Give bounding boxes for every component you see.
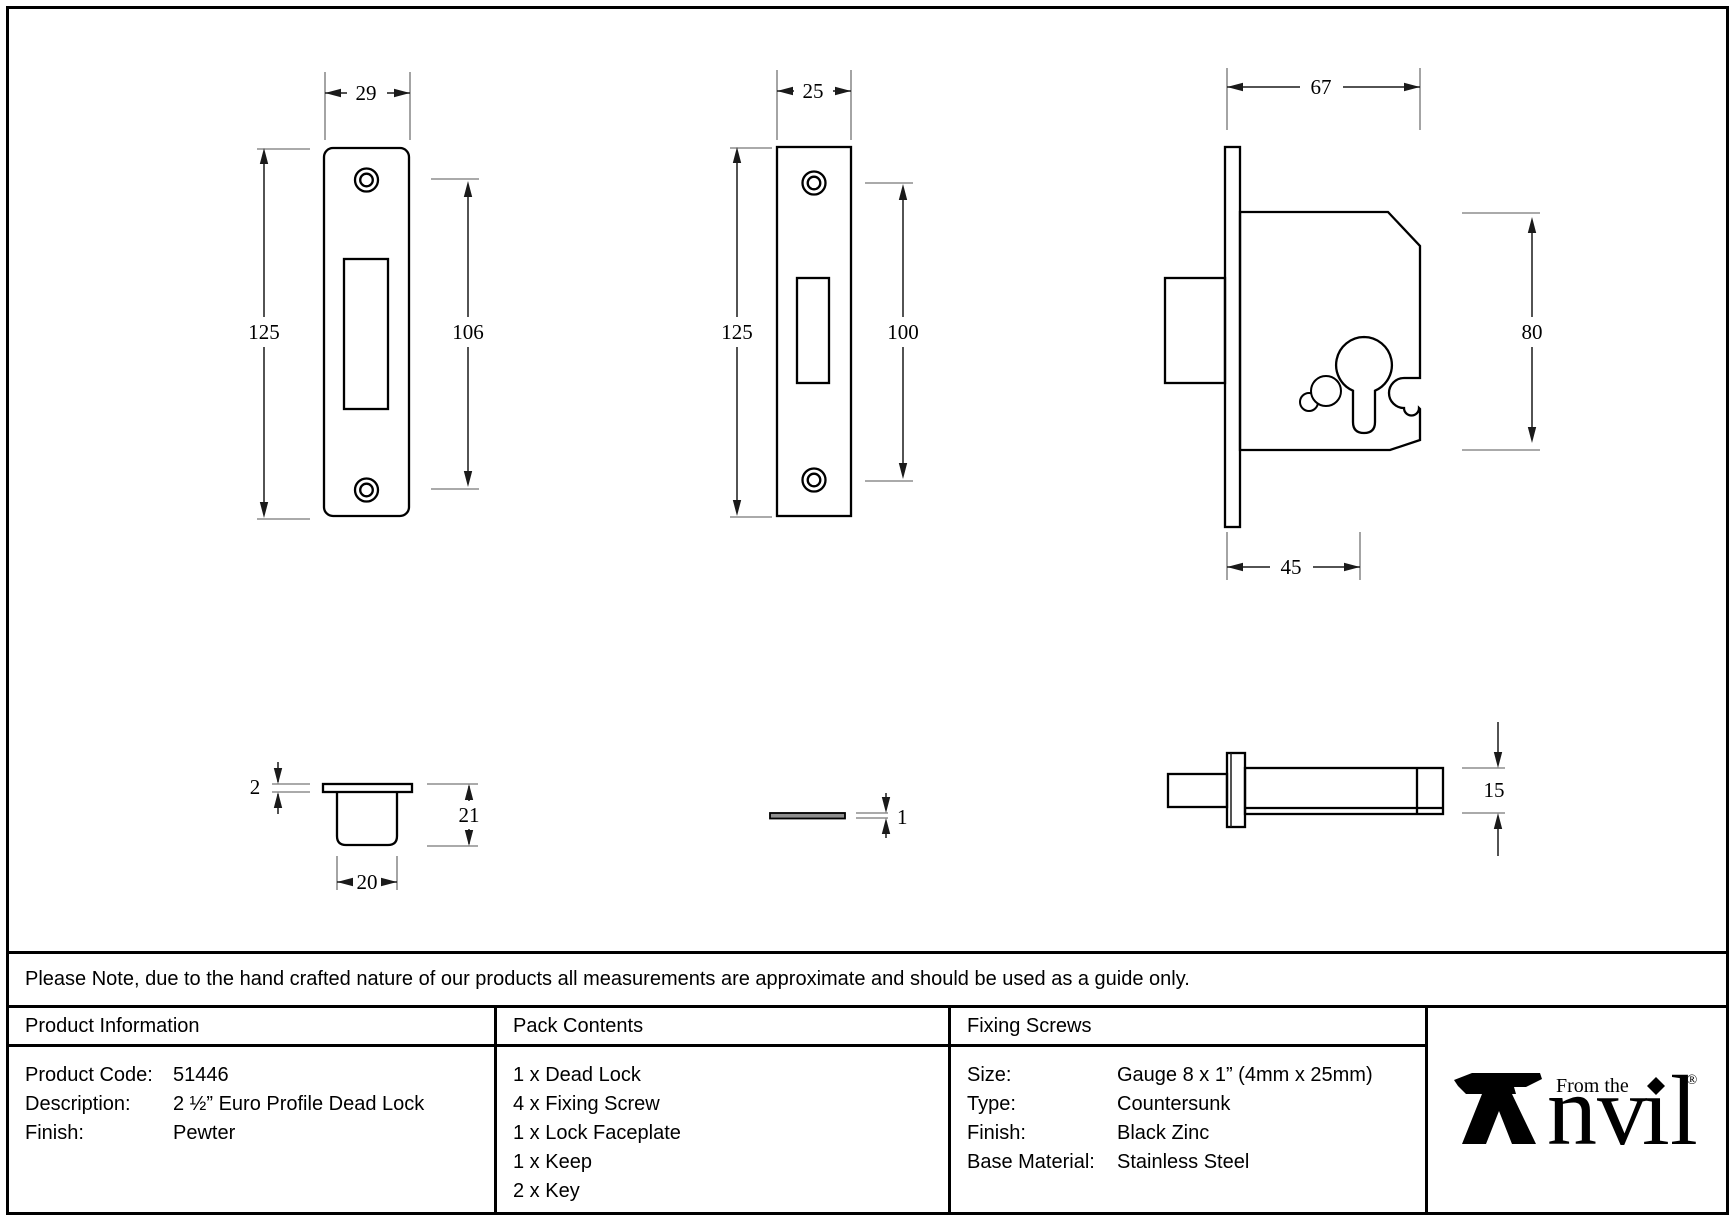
table-row: Type: Countersunk — [967, 1090, 1421, 1119]
lock-body-drawing: 67 80 45 — [1165, 68, 1543, 580]
dim-label: 67 — [1311, 75, 1332, 99]
table-row: Finish: Pewter — [25, 1119, 490, 1148]
pack-contents-column: Pack Contents 1 x Dead Lock 4 x Fixing S… — [494, 1008, 948, 1212]
keep-side-drawing: 2 21 20 — [250, 762, 480, 894]
row-label: Product Code: — [25, 1061, 173, 1090]
screw-hole-icon — [355, 169, 378, 192]
dim-label: 100 — [887, 320, 919, 344]
row-value: 2 ½” Euro Profile Dead Lock — [173, 1090, 424, 1119]
product-information-column: Product Information Product Code: 51446 … — [9, 1008, 494, 1212]
bolt-cutout — [344, 259, 388, 409]
keep-plate-outline — [324, 148, 409, 516]
list-item: 1 x Lock Faceplate — [513, 1119, 944, 1148]
screw-hole-icon — [360, 484, 373, 497]
row-label: Finish: — [967, 1119, 1117, 1148]
row-value: Black Zinc — [1117, 1119, 1209, 1148]
technical-drawing-area: 29 125 106 25 — [0, 0, 1735, 950]
dim-label: 15 — [1484, 778, 1505, 802]
keep-box — [337, 792, 397, 845]
registered-mark: ® — [1687, 1073, 1698, 1088]
screw-hole-icon — [803, 172, 826, 195]
deadbolt — [1165, 278, 1225, 383]
screw-hole-icon — [360, 174, 373, 187]
dim-label: 29 — [356, 81, 377, 105]
note-bar: Please Note, due to the hand crafted nat… — [6, 951, 1729, 1008]
spec-sheet-page: 29 125 106 25 — [0, 0, 1735, 1217]
dim-label: 25 — [803, 79, 824, 103]
faceplate-edge-strip — [770, 813, 845, 819]
faceplate-edge — [1225, 147, 1240, 527]
table-row: Finish: Black Zinc — [967, 1119, 1421, 1148]
dim-label: 21 — [459, 803, 480, 827]
spec-table: Product Information Product Code: 51446 … — [9, 1008, 1726, 1212]
dim-label: 2 — [250, 775, 261, 799]
dim-label: 20 — [357, 870, 378, 894]
bolt-edge — [1168, 774, 1227, 807]
anvil-icon — [1454, 1073, 1542, 1144]
row-value: Stainless Steel — [1117, 1148, 1249, 1177]
table-row: Product Code: 51446 — [25, 1061, 490, 1090]
faceplate-front-drawing: 25 125 100 — [721, 70, 919, 517]
row-value: 51446 — [173, 1061, 229, 1090]
bolt-cutout — [797, 278, 829, 383]
column-header: Product Information — [9, 1008, 494, 1047]
row-label: Size: — [967, 1061, 1117, 1090]
row-label: Finish: — [25, 1119, 173, 1148]
row-value: Gauge 8 x 1” (4mm x 25mm) — [1117, 1061, 1373, 1090]
list-item: 4 x Fixing Screw — [513, 1090, 944, 1119]
dim-label: 125 — [721, 320, 753, 344]
screw-hole-icon — [808, 474, 821, 487]
dim-label: 106 — [452, 320, 484, 344]
list-item: 1 x Dead Lock — [513, 1061, 944, 1090]
dim-label: 125 — [248, 320, 280, 344]
table-row: Size: Gauge 8 x 1” (4mm x 25mm) — [967, 1061, 1421, 1090]
dim-label: 1 — [897, 805, 908, 829]
list-item: 2 x Key — [513, 1177, 944, 1206]
anvil-logo: nv ı l From the ® — [1452, 1068, 1702, 1152]
keep-front-drawing: 29 125 106 — [248, 72, 484, 519]
dim-label: 80 — [1522, 320, 1543, 344]
cam-cutout — [1311, 376, 1341, 406]
fixing-screws-column: Fixing Screws Size: Gauge 8 x 1” (4mm x … — [948, 1008, 1425, 1212]
row-value: Pewter — [173, 1119, 235, 1148]
row-label: Base Material: — [967, 1148, 1117, 1177]
logo-tagline: From the — [1556, 1075, 1629, 1097]
keep-plate-edge — [323, 784, 412, 792]
row-label: Description: — [25, 1090, 173, 1119]
row-value: Countersunk — [1117, 1090, 1230, 1119]
screw-hole-icon — [803, 469, 826, 492]
screw-hole-icon — [355, 479, 378, 502]
lock-case-outline — [1240, 212, 1420, 450]
brand-logo-cell: nv ı l From the ® — [1425, 1008, 1726, 1212]
table-row: Description: 2 ½” Euro Profile Dead Lock — [25, 1090, 490, 1119]
table-row: Base Material: Stainless Steel — [967, 1148, 1421, 1177]
column-header: Fixing Screws — [951, 1008, 1425, 1047]
screw-hole-icon — [808, 177, 821, 190]
faceplate-cross-section — [1227, 753, 1245, 827]
list-item: 1 x Keep — [513, 1148, 944, 1177]
faceplate-thickness-drawing: 1 — [770, 793, 908, 838]
lock-body-edge-drawing: 15 — [1168, 722, 1505, 856]
note-text: Please Note, due to the hand crafted nat… — [25, 968, 1190, 991]
row-label: Type: — [967, 1090, 1117, 1119]
dim-label: 45 — [1281, 555, 1302, 579]
euro-cylinder-hole — [1336, 337, 1392, 433]
column-header: Pack Contents — [497, 1008, 948, 1047]
faceplate-outline — [777, 147, 851, 516]
